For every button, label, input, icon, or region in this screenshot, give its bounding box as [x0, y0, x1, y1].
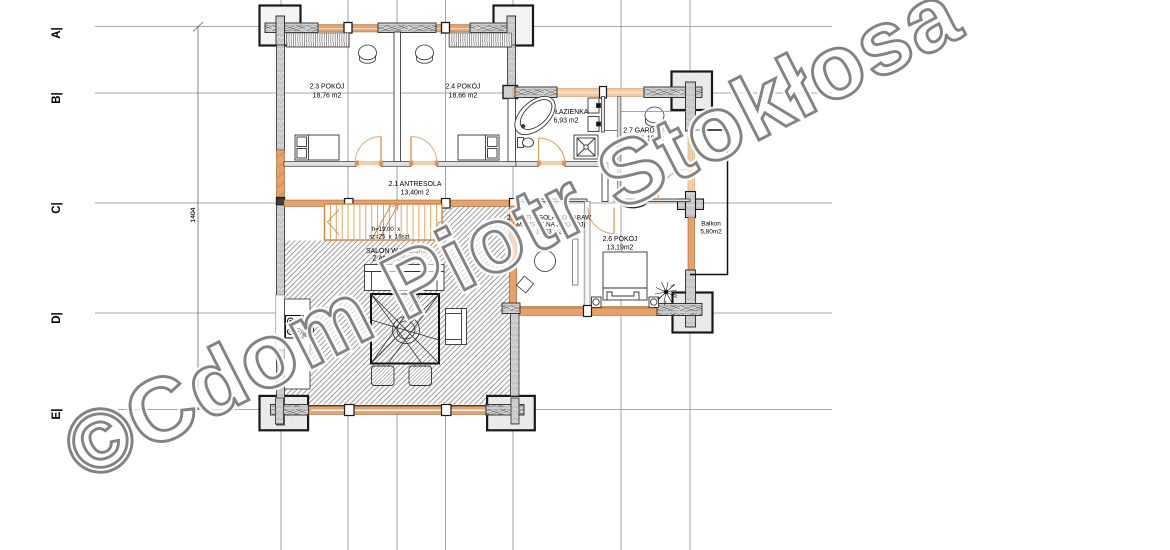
svg-text:18,66 m2: 18,66 m2: [449, 93, 478, 100]
svg-text:5,80m2: 5,80m2: [700, 229, 722, 236]
svg-text:6,93 m2: 6,93 m2: [554, 118, 579, 125]
svg-text:E|: E|: [51, 409, 63, 420]
svg-text:1404: 1404: [190, 207, 197, 222]
svg-text:2.1 ANTRESOLA: 2.1 ANTRESOLA: [389, 181, 442, 188]
svg-text:D|: D|: [51, 312, 63, 324]
svg-text:18,76 m2: 18,76 m2: [313, 93, 342, 100]
svg-text:h=19,00 x: h=19,00 x: [372, 227, 400, 233]
svg-text:Balkon: Balkon: [701, 221, 721, 228]
svg-text:A|: A|: [51, 27, 63, 39]
svg-text:B|: B|: [51, 92, 63, 104]
svg-text:2.4 POKÓJ: 2.4 POKÓJ: [446, 82, 481, 91]
svg-text:13,19m2: 13,19m2: [607, 245, 634, 252]
svg-text:2.3 POKÓJ: 2.3 POKÓJ: [310, 82, 345, 91]
svg-text:C|: C|: [51, 202, 63, 214]
svg-text:13,40m 2: 13,40m 2: [401, 190, 430, 197]
